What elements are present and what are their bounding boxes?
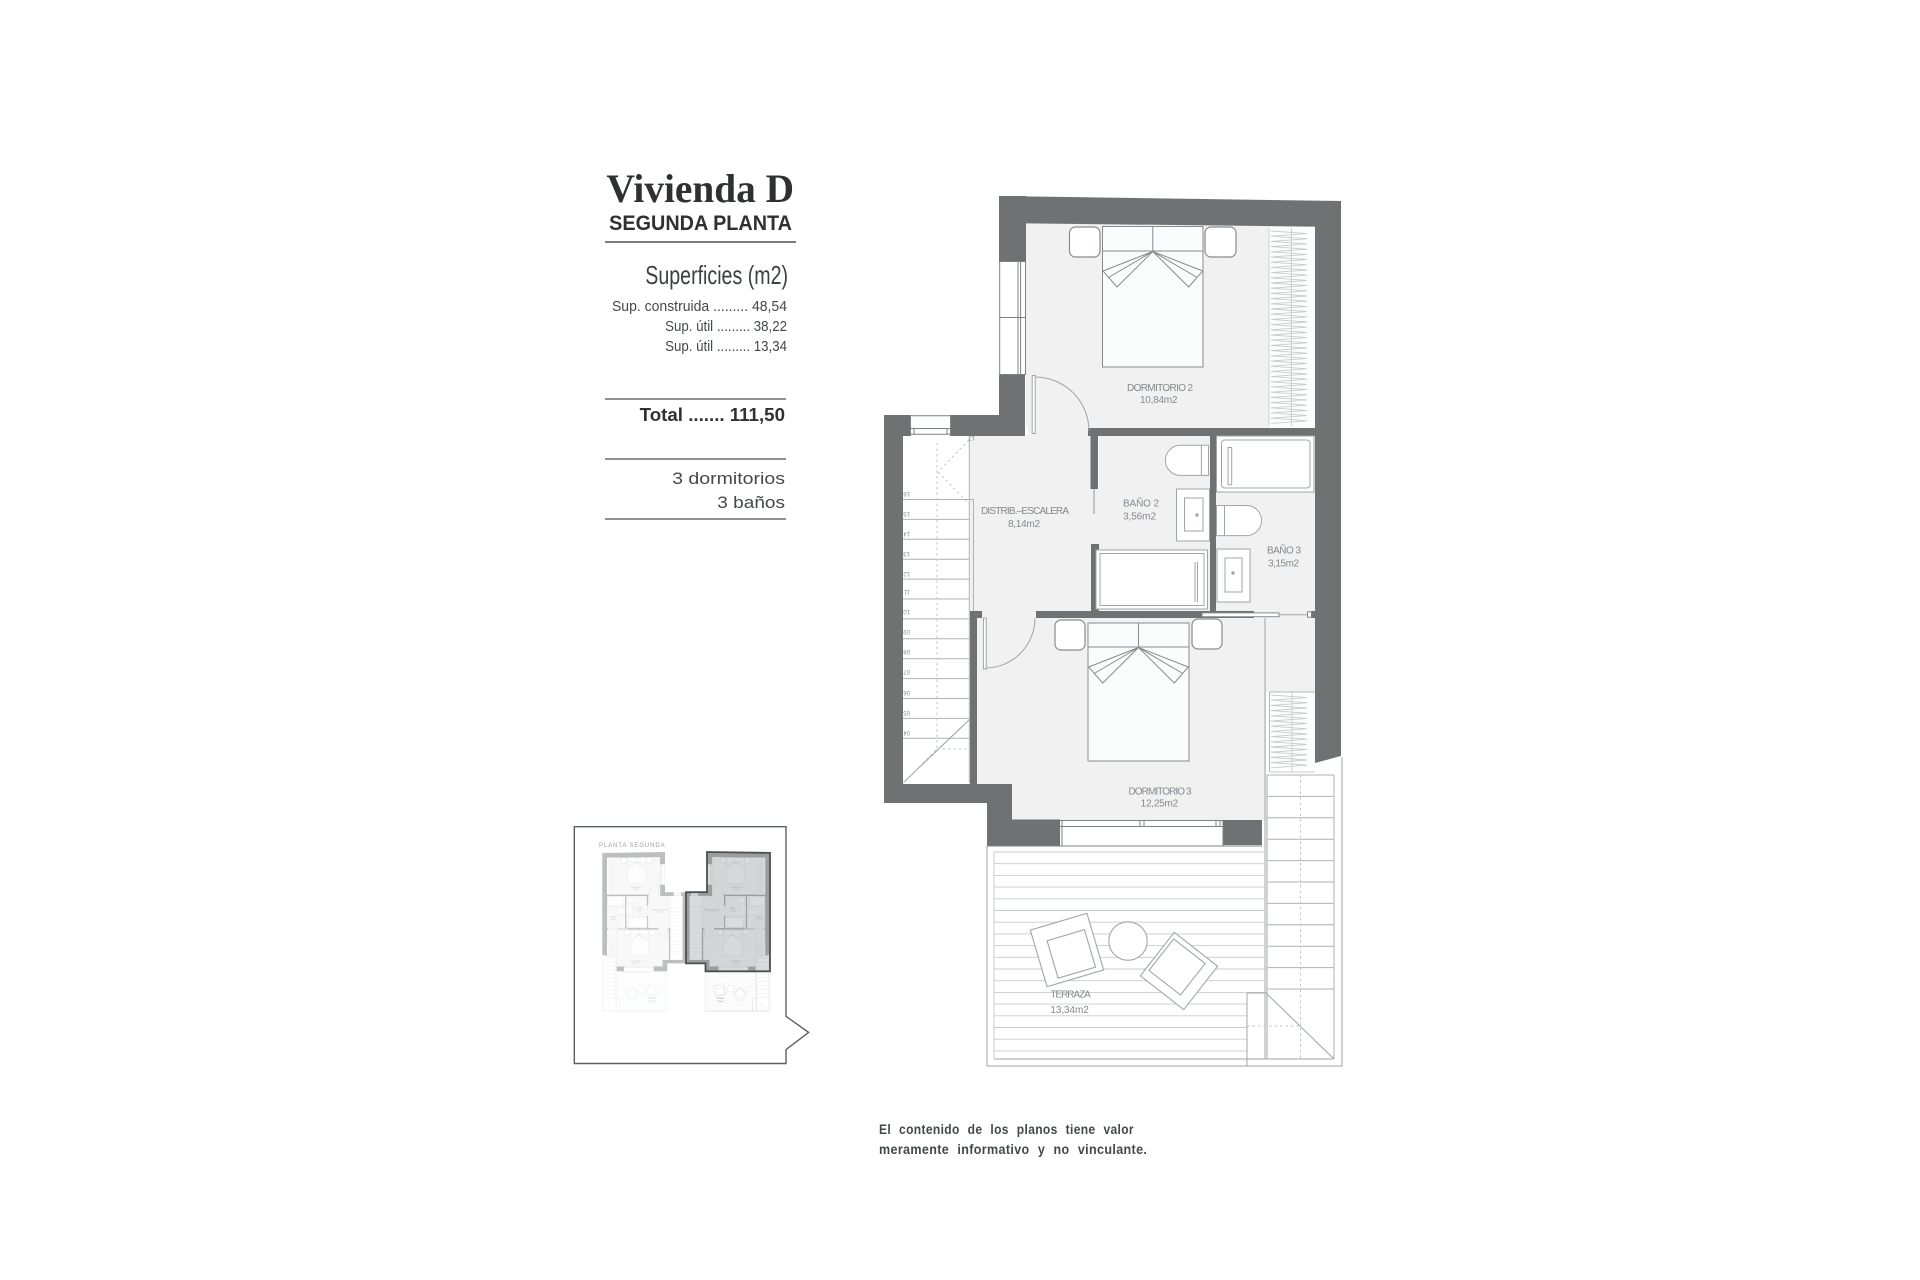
svg-text:TERRAZA: TERRAZA	[1050, 990, 1091, 1001]
svg-text:10,84m2: 10,84m2	[1140, 395, 1178, 406]
svg-text:DISTRIB.–ESCALERA: DISTRIB.–ESCALERA	[981, 506, 1069, 517]
svg-text:13: 13	[903, 550, 910, 556]
svg-text:10: 10	[903, 608, 910, 614]
svg-text:BAÑO 3: BAÑO 3	[1267, 544, 1301, 557]
svg-text:07: 07	[903, 668, 910, 674]
svg-text:12: 12	[903, 570, 910, 576]
svg-text:BAÑO 2: BAÑO 2	[1123, 497, 1159, 510]
svg-text:17: 17	[968, 434, 975, 440]
svg-text:16: 16	[903, 490, 910, 496]
svg-text:08: 08	[903, 648, 910, 654]
svg-text:8,14m2: 8,14m2	[1008, 519, 1040, 530]
svg-text:14: 14	[903, 530, 910, 536]
svg-text:09: 09	[903, 628, 910, 634]
svg-text:15: 15	[903, 510, 910, 516]
svg-text:PLANTA SEGUNDA: PLANTA SEGUNDA	[599, 843, 666, 849]
svg-text:3,56m2: 3,56m2	[1123, 512, 1156, 523]
svg-text:04: 04	[903, 729, 910, 735]
svg-text:12,25m2: 12,25m2	[1141, 799, 1179, 810]
svg-text:05: 05	[903, 709, 910, 715]
svg-text:DORMITORIO 2: DORMITORIO 2	[1127, 383, 1193, 394]
svg-text:DORMITORIO 3: DORMITORIO 3	[1129, 787, 1192, 798]
svg-text:3,15m2: 3,15m2	[1268, 559, 1299, 570]
svg-text:11: 11	[903, 588, 910, 594]
svg-text:06: 06	[903, 689, 910, 695]
svg-text:13,34m2: 13,34m2	[1050, 1005, 1089, 1016]
